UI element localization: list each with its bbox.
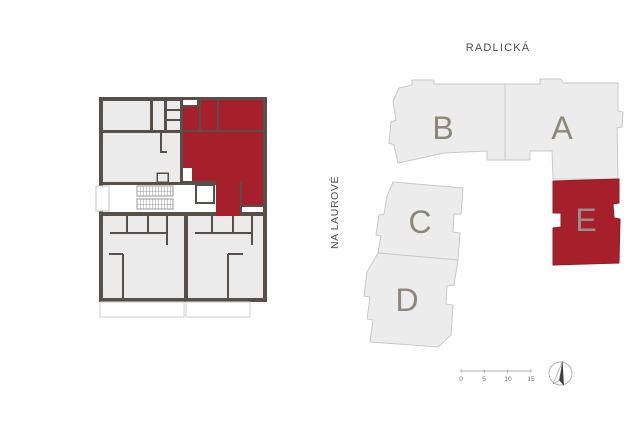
- building-a-label: A: [551, 110, 573, 146]
- balconies: [100, 302, 250, 317]
- site-plan: B A C D E RADLICKÁ NA LAUROVÉ 0 5 10 15: [328, 41, 623, 386]
- street-label-na-laurove: NA LAUROVÉ: [328, 176, 341, 249]
- interior-room: [196, 185, 214, 203]
- north-arrow-icon: [549, 360, 572, 386]
- scale-label-5: 5: [482, 376, 486, 383]
- page: B A C D E RADLICKÁ NA LAUROVÉ 0 5 10 15: [0, 0, 631, 422]
- unit-notch: [183, 168, 192, 181]
- building-d-label: D: [395, 282, 418, 318]
- shaft: [157, 173, 168, 182]
- scale-label-10: 10: [504, 376, 512, 383]
- street-label-radlicka: RADLICKÁ: [466, 41, 531, 54]
- floor-plan: [96, 97, 267, 317]
- scale-label-15: 15: [527, 376, 535, 383]
- scale-label-0: 0: [459, 376, 463, 383]
- annex-room: [96, 186, 109, 211]
- plan-graphic: B A C D E RADLICKÁ NA LAUROVÉ 0 5 10 15: [0, 0, 631, 422]
- scale-bar: 0 5 10 15: [459, 370, 535, 384]
- building-b-label: B: [432, 110, 453, 146]
- building-c-label: C: [408, 204, 431, 240]
- building-e-label: E: [575, 202, 596, 238]
